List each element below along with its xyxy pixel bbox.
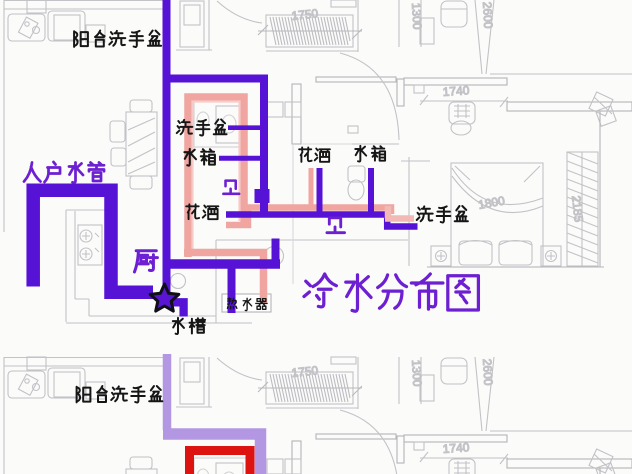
- svg-text:1300: 1300: [409, 2, 424, 30]
- svg-text:1750: 1750: [291, 6, 319, 23]
- svg-text:1740: 1740: [442, 83, 470, 99]
- svg-text:2600: 2600: [480, 1, 495, 29]
